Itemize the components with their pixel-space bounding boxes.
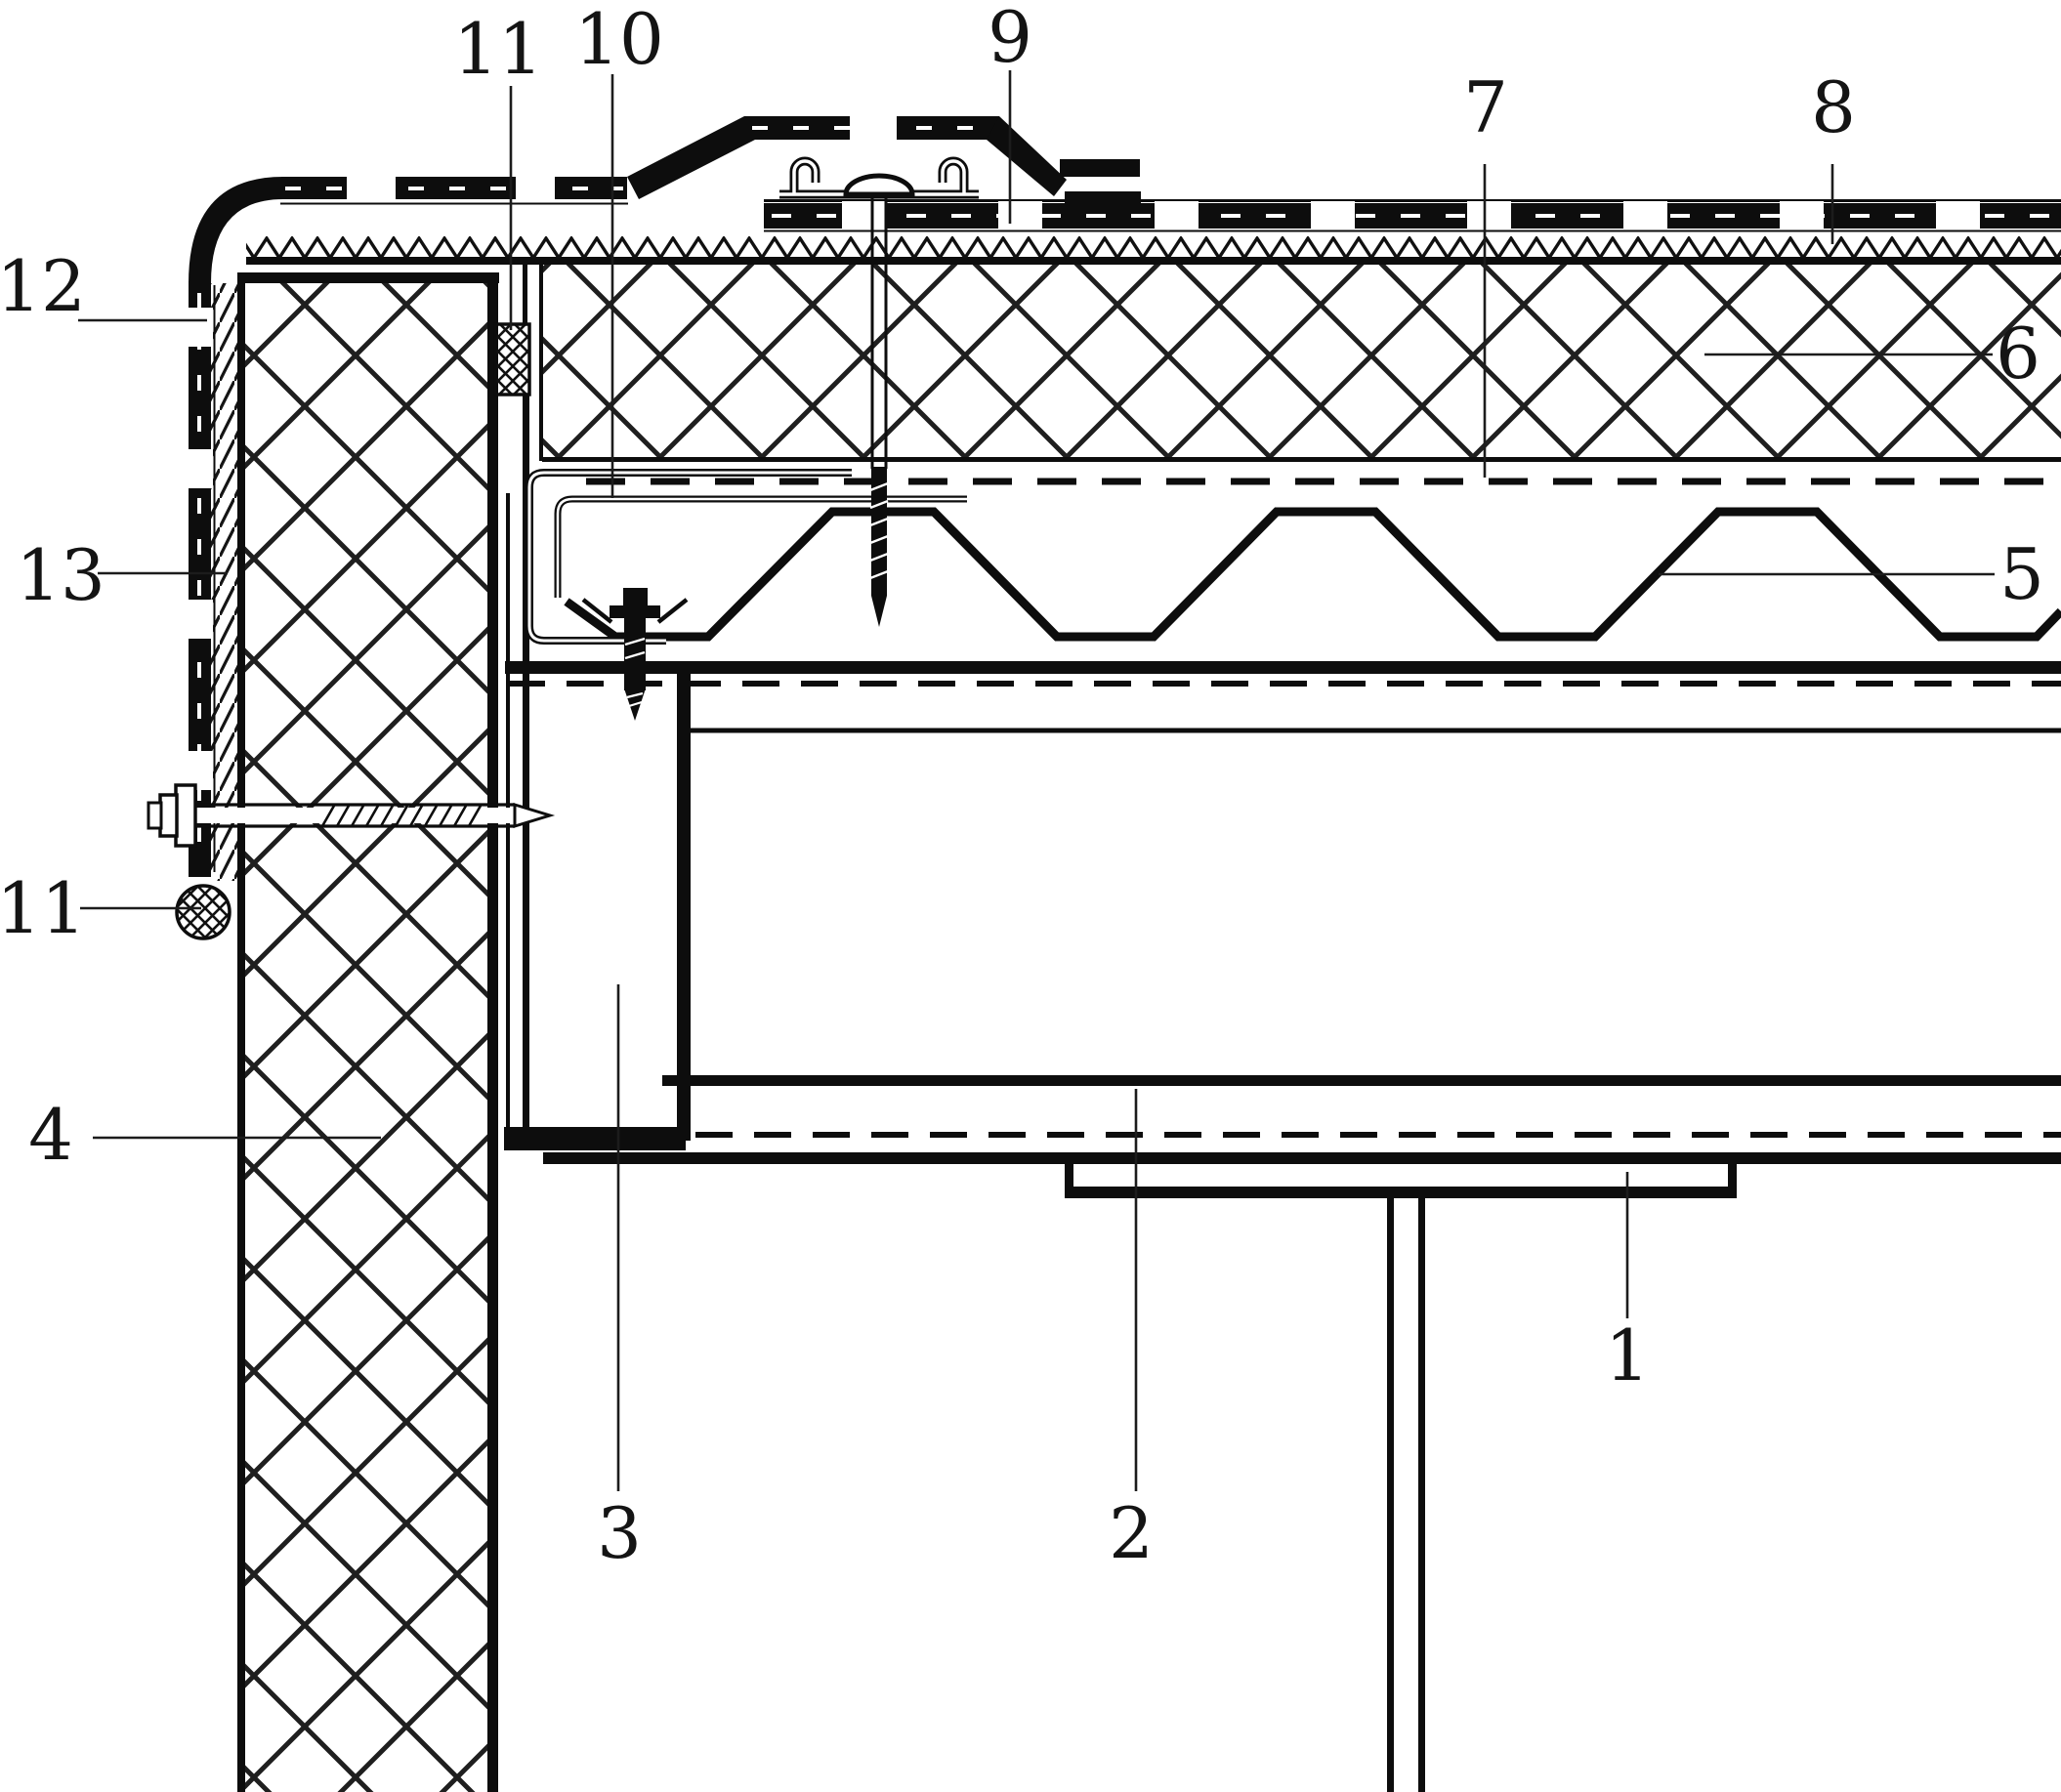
wall-screw-hex-tip xyxy=(148,803,161,828)
callout-7: 7 xyxy=(1463,66,1508,148)
callout-12: 12 xyxy=(0,245,86,327)
callout-4: 4 xyxy=(28,1094,73,1176)
drawing-canvas: 1 2 3 4 5 6 7 8 9 10 11 12 13 11 xyxy=(0,0,2061,1792)
beam-bottom-flange-top xyxy=(662,1075,2061,1086)
wall-panel-outer-face xyxy=(237,272,245,1792)
seat-plate-left-lug xyxy=(1065,1164,1073,1193)
column-web-right xyxy=(1418,1196,1425,1792)
seam-overlap-upper xyxy=(1060,159,1140,177)
steel-beam xyxy=(505,661,2061,1164)
roof-insulation-top-edge xyxy=(246,257,2061,265)
seam-upslope xyxy=(627,116,757,199)
deck-screw-head xyxy=(623,588,648,605)
roof-insulation-bottom-edge xyxy=(542,457,2061,462)
callout-3: 3 xyxy=(597,1492,642,1574)
callout-5: 5 xyxy=(1999,533,2044,615)
roof-insulation-left-edge xyxy=(539,260,543,461)
column-web-left xyxy=(1387,1196,1394,1792)
support-plate-and-column xyxy=(1065,1164,1737,1792)
patent-roof-parapet-detail-drawing: 1 2 3 4 5 6 7 8 9 10 11 12 13 11 xyxy=(0,0,2061,1792)
seat-plate-right-lug xyxy=(1728,1164,1737,1193)
wall-panel-top-edge xyxy=(237,272,499,283)
edge-trim-upper xyxy=(523,265,527,325)
callout-9: 9 xyxy=(988,0,1032,78)
callout-8: 8 xyxy=(1811,66,1856,148)
callout-11-left: 11 xyxy=(0,867,86,949)
seat-plate xyxy=(1065,1187,1737,1198)
beam-top-flange-top xyxy=(505,661,2061,674)
wall-screw-hex-head xyxy=(160,795,177,836)
callout-1: 1 xyxy=(1605,1314,1650,1396)
beam-bottom-flange-bottom xyxy=(543,1152,2061,1164)
wall-screw-flange xyxy=(176,785,195,846)
joint-filler-block xyxy=(495,324,529,395)
coping-corner xyxy=(189,177,283,283)
roof-insulation-hatch xyxy=(543,264,2061,459)
seam-downslope xyxy=(987,116,1067,196)
roof-sheet-band xyxy=(764,201,2061,231)
adhesive-sawtooth-layer xyxy=(246,236,2061,258)
standing-seam-clip xyxy=(779,161,979,194)
clip-screw-head xyxy=(846,176,912,194)
deck-screw-washer xyxy=(610,605,660,618)
sealant-backer-rod xyxy=(177,886,230,938)
wall-panel-insulation-hatch xyxy=(245,283,487,1792)
channel-bottom xyxy=(504,1127,686,1150)
clip-screw-tip xyxy=(871,596,887,627)
callout-6: 6 xyxy=(1996,313,2040,395)
callout-2: 2 xyxy=(1109,1492,1154,1574)
wall-screw-tip xyxy=(515,805,550,826)
wall-sandwich-panel xyxy=(237,272,499,1792)
wall-panel-inner-face xyxy=(487,272,498,1792)
channel-right-flange xyxy=(677,674,691,1141)
callout-13: 13 xyxy=(16,534,105,616)
callout-11-top: 11 xyxy=(453,8,543,90)
deck-edge-screw xyxy=(583,588,687,721)
callout-10: 10 xyxy=(574,0,664,80)
